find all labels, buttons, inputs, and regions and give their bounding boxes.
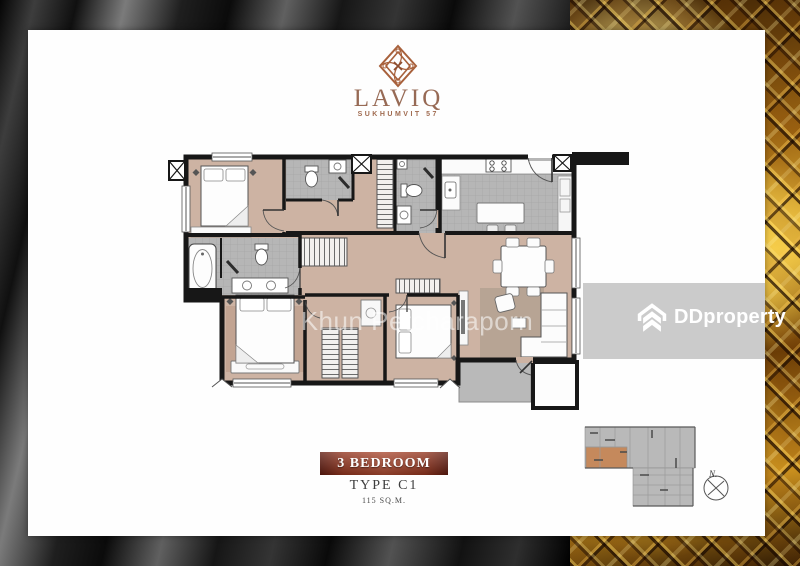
floor-plan (150, 140, 650, 418)
portal-logo: DDproperty (636, 302, 786, 333)
project-name: LAVIQ (327, 85, 467, 113)
highlighted-unit (586, 447, 627, 468)
dining-table (493, 238, 554, 296)
diamond-knot-icon (377, 44, 419, 88)
agent-watermark: Khun Petcharaporn (292, 306, 542, 337)
building-key-plan: N. (578, 420, 750, 515)
neighbor-wall-stub (572, 152, 629, 165)
balcony (533, 362, 577, 408)
double-chevron-house-icon (636, 302, 668, 333)
bedroom2-bed (193, 166, 257, 226)
building-footprint (585, 427, 695, 506)
unit-type: TYPE C1 (320, 478, 448, 494)
project-subtitle: SUKHUMVIT 57 (327, 111, 467, 118)
bedroom-banner: 3 BEDROOM (320, 452, 448, 475)
listing-image: LAVIQ SUKHUMVIT 57 (0, 0, 800, 566)
bathtub (189, 244, 216, 293)
north-label: N. (708, 469, 717, 479)
terrace (459, 362, 531, 402)
portal-logo-text: DDproperty (674, 306, 786, 329)
unit-area: 115 SQ.M. (320, 496, 448, 505)
kitchen-island (477, 203, 524, 223)
compass-icon: N. (704, 469, 728, 500)
